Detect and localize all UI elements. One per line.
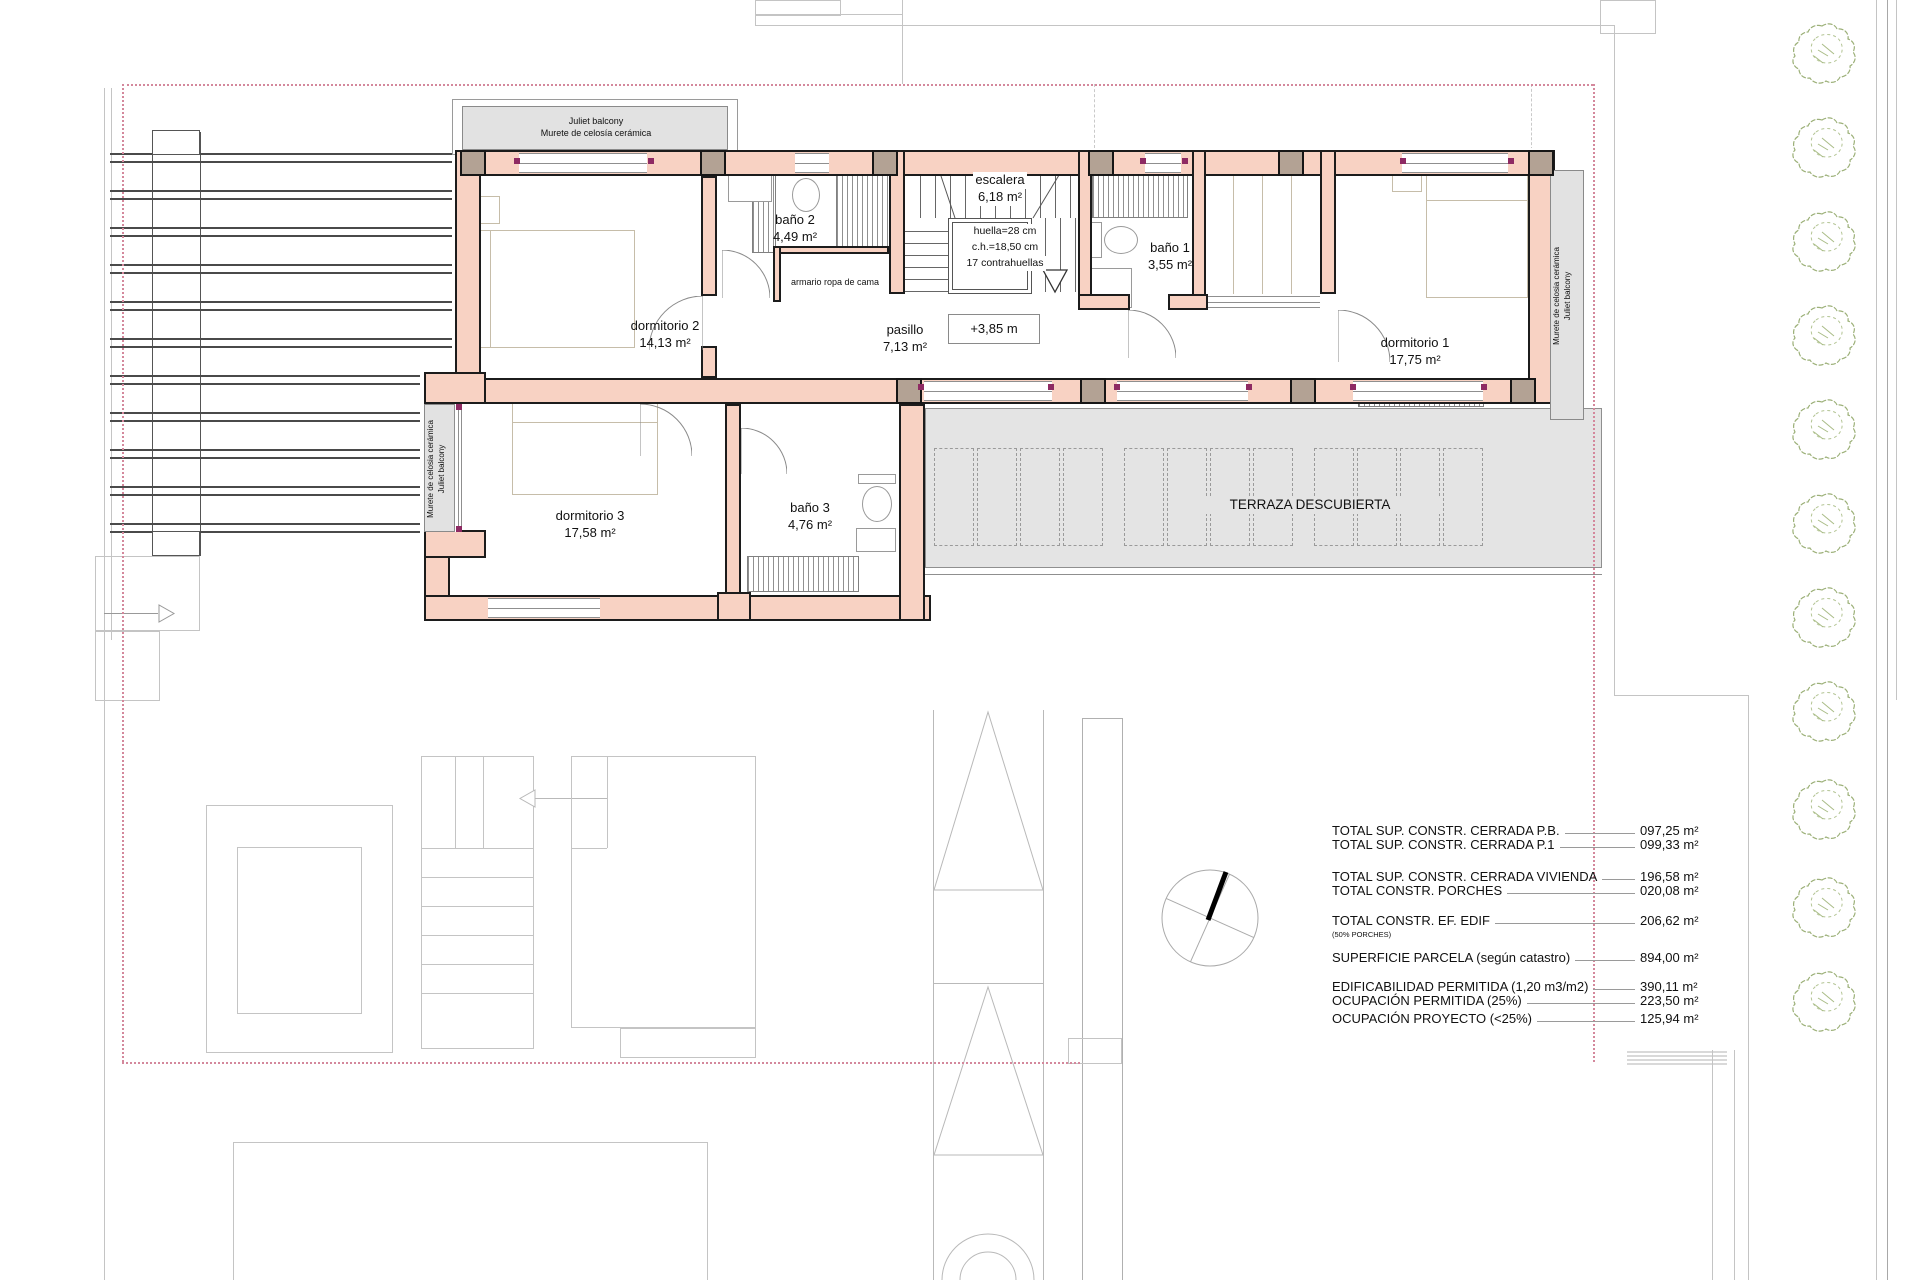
terrace-cell: [1020, 448, 1060, 546]
pergola-beam: [110, 264, 462, 274]
closet-rail: [1291, 176, 1292, 294]
room-area: 17,58 m²: [564, 525, 615, 540]
pergola-beam: [110, 486, 425, 496]
table-row: SUPERFICIE PARCELA (según catastro)894,0…: [1332, 951, 1724, 965]
window: [519, 153, 647, 173]
plot-line: [1748, 695, 1749, 1280]
closet-front: [1208, 296, 1320, 308]
driveway-arch: [940, 1230, 1036, 1280]
column: [460, 150, 486, 176]
row-value: 223,50 m²: [1640, 993, 1724, 1008]
jamb-marker: [1508, 158, 1514, 164]
wall-bano3: [725, 404, 741, 595]
wall-bano1-south: [1168, 294, 1208, 310]
column: [1510, 378, 1536, 404]
neighbor-outline: [95, 556, 200, 631]
pergola-beam: [110, 375, 462, 385]
tree-icon: [1786, 678, 1858, 742]
bed-line: [512, 422, 658, 423]
closet-hatch: [747, 556, 859, 592]
plot-line: [1734, 1050, 1735, 1280]
boundary-line: [1887, 0, 1888, 1280]
room-area: 6,18 m²: [976, 189, 1024, 206]
setback-line: [1531, 84, 1532, 150]
neighbor-stair-line: [421, 993, 534, 994]
wall-bano1-south: [1078, 294, 1130, 310]
row-value: 390,11 m²: [1640, 979, 1724, 994]
pergola-beam: [110, 412, 425, 422]
toilet: [862, 486, 892, 522]
table-row: TOTAL CONSTR. EF. EDIF206,62 m²: [1332, 914, 1724, 928]
setback-line: [1094, 84, 1095, 148]
leader-line: [1537, 1021, 1635, 1022]
driveway-triangle: [933, 710, 1044, 892]
neighbor-stair-line: [421, 935, 534, 936]
neighbor-outline: [571, 756, 756, 1028]
arrow-left-icon: [518, 789, 536, 808]
roof-outline: [755, 14, 903, 26]
row-label: TOTAL CONSTR. PORCHES: [1332, 883, 1502, 898]
pergola-beam: [110, 301, 462, 311]
toilet: [792, 178, 820, 212]
plot-line: [902, 0, 903, 84]
neighbor-outline: [233, 1142, 708, 1280]
room-area: 4,76 m²: [788, 517, 832, 532]
pergola-beam: [110, 338, 462, 348]
jamb-marker: [1400, 158, 1406, 164]
neighbor-line: [607, 756, 608, 848]
parcel-boundary: [122, 84, 1593, 86]
tree-icon: [1786, 490, 1858, 554]
room-area: 3,55 m²: [1148, 257, 1192, 272]
terrace-cell: [1443, 448, 1483, 546]
room-name: dormitorio 3: [556, 508, 625, 523]
leader-line: [1575, 960, 1635, 961]
jamb-marker: [1481, 384, 1487, 390]
stair-note: huella=28 cm c.h.=18,50 cm 17 contrahuel…: [925, 224, 1085, 271]
terrace-parapet: [925, 574, 1602, 575]
tree-icon: [1786, 776, 1858, 840]
row-label: SUPERFICIE PARCELA (según catastro): [1332, 950, 1570, 965]
window-balcony: [454, 404, 462, 532]
tree-icon: [1786, 208, 1858, 272]
room-label-bano1: baño 1 3,55 m²: [1115, 240, 1225, 274]
terrace-cell: [977, 448, 1017, 546]
row-label: TOTAL CONSTR. EF. EDIF: [1332, 913, 1490, 928]
table-row: OCUPACIÓN PROYECTO (<25%)125,94 m²: [1332, 1012, 1724, 1026]
balcony-right-label-2: Juliet balcony: [1563, 272, 1572, 320]
row-label: TOTAL SUP. CONSTR. CERRADA P.B.: [1332, 823, 1560, 838]
room-name: dormitorio 1: [1381, 335, 1450, 350]
floor-plan-canvas: TERRAZA DESCUBIERTA: [0, 0, 1920, 1280]
row-value: 196,58 m²: [1640, 869, 1724, 884]
balcony-right-label-1: Murete de celosia cerámica: [1552, 247, 1561, 345]
wall-east-lower: [899, 404, 925, 621]
roof-outline: [1600, 0, 1656, 34]
jamb-marker: [456, 526, 462, 532]
room-name: pasillo: [887, 322, 924, 337]
row-label: OCUPACIÓN PERMITIDA (25%): [1332, 993, 1522, 1008]
room-label-dormitorio2: dormitorio 2 14,13 m²: [590, 318, 740, 352]
room-name: dormitorio 2: [631, 318, 700, 333]
neighbor-stair-line: [455, 756, 456, 848]
door-arc: [640, 404, 692, 456]
pergola-end: [152, 130, 200, 155]
jamb-marker: [456, 404, 462, 410]
neighbor-stair-line: [421, 848, 534, 849]
room-area: 14,13 m²: [639, 335, 690, 350]
plot-line: [1122, 718, 1123, 1280]
jamb-marker: [1350, 384, 1356, 390]
jamb-marker: [918, 384, 924, 390]
pergola-beam: [110, 449, 425, 459]
room-name: baño 3: [790, 500, 830, 515]
balcony-top-label-2: Murete de celosía cerámica: [541, 128, 652, 138]
stair-note-1: huella=28 cm: [972, 224, 1039, 240]
terrace-cell: [934, 448, 974, 546]
row-value: 097,25 m²: [1640, 823, 1724, 838]
pergola-beam: [110, 227, 462, 237]
table-row: TOTAL SUP. CONSTR. CERRADA P.B.097,25 m²: [1332, 824, 1724, 838]
window-terrace: [1353, 381, 1483, 401]
neighbor-stair-line: [421, 964, 534, 965]
neighbor-stair-line: [483, 756, 484, 848]
jamb-marker: [1246, 384, 1252, 390]
neighbor-outline: [237, 847, 362, 1014]
driveway-triangle: [933, 983, 1044, 1157]
room-label-dormitorio1: dormitorio 1 17,75 m²: [1335, 335, 1495, 369]
room-label-bano2: baño 2 4,49 m²: [745, 212, 845, 246]
table-note: (50% PORCHES): [1332, 930, 1391, 939]
column: [872, 150, 898, 176]
window-terrace: [1117, 381, 1248, 401]
jamb-marker: [1048, 384, 1054, 390]
column: [896, 378, 922, 404]
pergola-beam: [110, 190, 462, 200]
plot-box: [1068, 1038, 1122, 1064]
wall-closet: [1320, 150, 1336, 294]
balcony-left: Murete de celosia cerámica Juliet balcon…: [424, 404, 456, 532]
terrace-label: TERRAZA DESCUBIERTA: [1180, 496, 1440, 514]
window: [1145, 153, 1181, 173]
plot-line: [1614, 25, 1615, 695]
neighbor-outline: [95, 631, 160, 701]
door-arc: [1128, 310, 1176, 358]
room-area: 17,75 m²: [1389, 352, 1440, 367]
stair-note-3: 17 contrahuellas: [964, 256, 1045, 272]
table-row: TOTAL CONSTR. PORCHES020,08 m²: [1332, 884, 1724, 898]
stair-note-2: c.h.=18,50 cm: [970, 240, 1040, 256]
closet-rail: [1233, 176, 1234, 294]
boundary-line: [1876, 0, 1877, 1280]
door-arc: [741, 428, 787, 474]
column: [700, 150, 726, 176]
room-area: 4,49 m²: [773, 229, 817, 244]
leader-line: [1602, 879, 1635, 880]
window-terrace: [924, 381, 1052, 401]
window: [795, 153, 829, 173]
room-label-dormitorio3: dormitorio 3 17,58 m²: [510, 508, 670, 542]
room-name: baño 1: [1150, 240, 1190, 255]
tree-icon: [1786, 114, 1858, 178]
closet-rail: [1262, 176, 1263, 294]
balcony-left-label-2: Juliet balcony: [437, 445, 446, 493]
plot-line: [902, 25, 1614, 26]
plot-line: [1082, 718, 1123, 719]
jamb-marker: [1140, 158, 1146, 164]
jamb-marker: [1182, 158, 1188, 164]
wall-dorm2: [701, 176, 717, 296]
room-name: baño 2: [775, 212, 815, 227]
tree-icon: [1786, 20, 1858, 84]
row-label: OCUPACIÓN PROYECTO (<25%): [1332, 1011, 1532, 1026]
bed-line: [1426, 200, 1528, 201]
column: [1080, 378, 1106, 404]
leader-line: [1495, 923, 1635, 924]
room-area: 7,13 m²: [883, 339, 927, 354]
toilet-tank: [858, 474, 896, 484]
table-row: TOTAL SUP. CONSTR. CERRADA VIVIENDA196,5…: [1332, 870, 1724, 884]
column: [1278, 150, 1304, 176]
tree-icon: [1786, 968, 1858, 1032]
arrow-right-icon: [158, 604, 176, 623]
wall-bano1: [1192, 150, 1206, 310]
bed-dorm1: [1426, 162, 1528, 298]
row-value: 894,00 m²: [1640, 950, 1724, 965]
closet-label: armario ropa de cama: [781, 276, 889, 288]
pergola-end: [152, 531, 200, 556]
neighbor-stair-line: [421, 906, 534, 907]
row-value: 206,62 m²: [1640, 913, 1724, 928]
row-label: TOTAL SUP. CONSTR. CERRADA VIVIENDA: [1332, 869, 1597, 884]
neighbor-line: [571, 848, 607, 849]
wall-armario: [773, 246, 889, 254]
leader-line: [1507, 893, 1635, 894]
compass-icon: [1156, 864, 1264, 972]
window: [488, 598, 600, 618]
window: [1402, 153, 1508, 173]
balcony-top-label-1: Juliet balcony: [569, 116, 624, 126]
room-name: escalera: [973, 172, 1026, 189]
column: [1528, 150, 1554, 176]
row-value: 020,08 m²: [1640, 883, 1724, 898]
table-row: TOTAL SUP. CONSTR. CERRADA P.1099,33 m²: [1332, 838, 1724, 852]
row-value: 099,33 m²: [1640, 837, 1724, 852]
bed-line: [490, 230, 491, 348]
room-label-escalera: escalera 6,18 m²: [935, 172, 1065, 206]
terrace-cell: [1063, 448, 1103, 546]
wall-armario: [773, 246, 781, 302]
column: [1290, 378, 1316, 404]
leader-line: [1593, 989, 1635, 990]
wall-west: [455, 150, 481, 404]
door-arc: [722, 250, 770, 298]
row-value: 125,94 m²: [1640, 1011, 1724, 1026]
bed-dorm3: [512, 400, 658, 495]
balcony-left-label-1: Murete de celosia cerámica: [426, 420, 435, 518]
jamb-marker: [514, 158, 520, 164]
tree-icon: [1786, 396, 1858, 460]
plot-line: [1712, 1050, 1713, 1280]
jamb-marker: [648, 158, 654, 164]
neighbor-outline: [620, 1028, 756, 1058]
parcel-boundary: [122, 1062, 1080, 1064]
room-label-bano3: baño 3 4,76 m²: [755, 500, 865, 534]
leader-line: [1560, 847, 1635, 848]
row-label: EDIFICABILIDAD PERMITIDA (1,20 m3/m2): [1332, 979, 1588, 994]
tree-icon: [1786, 874, 1858, 938]
plot-line: [1082, 718, 1083, 1280]
room-label-pasillo: pasillo 7,13 m²: [845, 322, 965, 356]
table-row: OCUPACIÓN PERMITIDA (25%)223,50 m²: [1332, 994, 1724, 1008]
neighbor-stair-line: [421, 877, 534, 878]
parcel-boundary: [122, 84, 124, 1062]
terrace-cell: [1124, 448, 1164, 546]
column: [1088, 150, 1114, 176]
tree-icon: [1786, 302, 1858, 366]
row-label: TOTAL SUP. CONSTR. CERRADA P.1: [1332, 837, 1555, 852]
balcony-right: Murete de celosia cerámica Juliet balcon…: [1550, 170, 1584, 420]
boundary-line: [1896, 0, 1897, 700]
wall-corner: [424, 372, 486, 404]
balcony-top: Juliet balcony Murete de celosía cerámic…: [462, 106, 728, 150]
leader-line: [1527, 1003, 1635, 1004]
tree-icon: [1786, 584, 1858, 648]
wall-block: [717, 592, 751, 621]
leader-line: [1565, 833, 1635, 834]
plot-line: [1614, 695, 1748, 696]
areas-table: TOTAL SUP. CONSTR. CERRADA P.B.097,25 m²…: [1332, 818, 1724, 1033]
level-mark: +3,85 m: [948, 314, 1040, 344]
sink: [728, 172, 772, 202]
jamb-marker: [1114, 384, 1120, 390]
table-row: EDIFICABILIDAD PERMITIDA (1,20 m3/m2)390…: [1332, 980, 1724, 994]
